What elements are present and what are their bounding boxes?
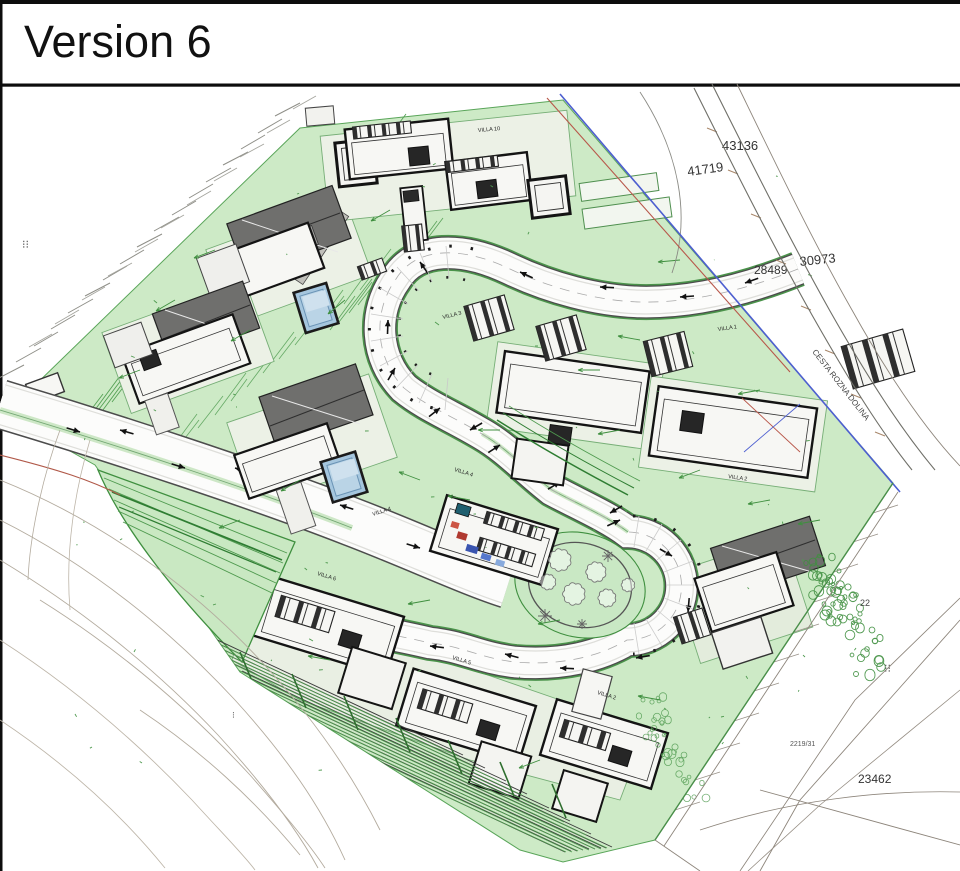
svg-text:2219/31: 2219/31: [790, 741, 815, 748]
svg-text:28489: 28489: [754, 263, 788, 277]
svg-text:23462: 23462: [858, 772, 892, 786]
svg-text:⁝: ⁝: [232, 710, 235, 720]
svg-text:Version 6: Version 6: [24, 16, 212, 67]
svg-text:22: 22: [860, 598, 870, 608]
svg-text:⁝⁝: ⁝⁝: [22, 239, 29, 251]
